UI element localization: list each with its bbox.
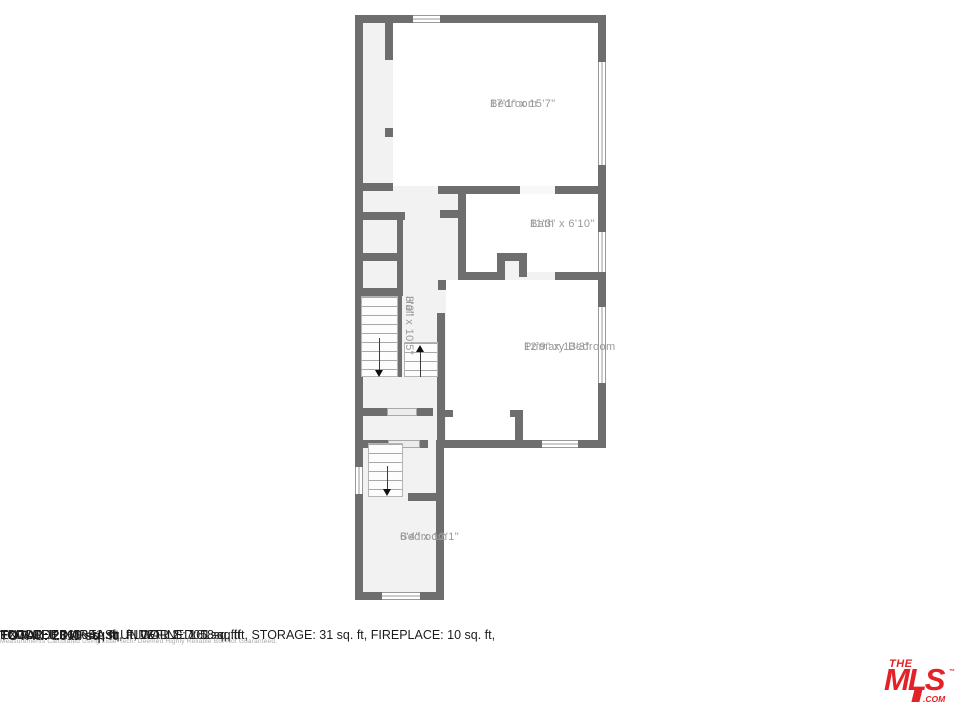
window-left-lower — [355, 467, 363, 494]
wall-closet-stub-b — [510, 410, 523, 417]
wall-right-lower — [436, 440, 444, 600]
room-dims: 6'4" x 12'1" — [400, 530, 459, 544]
room-dims: 12'9" x 13'3" — [524, 340, 590, 354]
wall-bath-bottom-1 — [458, 272, 497, 280]
wall-hall-upper — [355, 212, 405, 220]
window-right-bath — [598, 232, 606, 272]
logo-com-text: .COM — [923, 694, 945, 704]
wall-closet-stub-a — [444, 410, 453, 417]
down-arrow-icon-lower — [383, 489, 391, 496]
floorplan-page: Bedroom 17'1" x 15'7" Bath 11'3" x 6'10"… — [0, 0, 960, 720]
wall-stub-2 — [440, 210, 458, 218]
wall-hall-lower — [355, 253, 400, 261]
wall-primary-left-cap — [438, 280, 446, 290]
wall-bottom-upper-4 — [578, 440, 606, 448]
wall-niche-top — [497, 253, 527, 261]
window-bottom-bedroom — [382, 592, 420, 600]
wall-bath-bottom-2 — [555, 272, 598, 280]
summary-disclaimer: Measurements Calculated Using Lidar Tech… — [0, 638, 277, 645]
room-dims: 17'1" x 15'7" — [490, 97, 556, 111]
wall-bottom-upper-2 — [420, 440, 428, 448]
room-bath — [466, 194, 598, 272]
wall-closet-divider — [385, 23, 393, 60]
closet-slider-door-1 — [387, 408, 417, 416]
down-arrow-icon — [375, 370, 383, 377]
trademark-symbol: ™ — [949, 669, 955, 675]
window-primary-bottom — [542, 440, 578, 448]
themls-logo: THE MLS ™ .COM — [884, 656, 956, 710]
room-dims: 11'3" x 6'10" — [530, 217, 595, 231]
wall-bath-top-2 — [555, 186, 606, 194]
window-top — [413, 15, 440, 23]
window-right-bedroom — [598, 62, 606, 165]
wall-landing-1 — [363, 408, 387, 416]
wall-bath-hall-divider — [458, 194, 466, 276]
floorplan: Bedroom 17'1" x 15'7" Bath 11'3" x 6'10"… — [0, 0, 960, 720]
stair-arrow-line-up — [420, 351, 421, 377]
wall-landing-2 — [417, 408, 433, 416]
wall-top — [355, 15, 606, 23]
wall-stub-1 — [385, 128, 393, 137]
room-dims: 3'0" x 10'5" — [402, 296, 416, 355]
doorway-bath-top — [520, 186, 555, 194]
wall-primary-left — [437, 313, 445, 440]
wall-niche-right — [519, 261, 527, 277]
logo-l-descender — [911, 689, 922, 702]
wall-closet-bottom — [355, 183, 393, 191]
wall-closet-side — [515, 417, 523, 440]
up-arrow-icon — [416, 345, 424, 352]
wall-stairwell-top — [355, 288, 402, 296]
niche-interior — [505, 261, 519, 280]
wall-bath-top-1 — [438, 186, 520, 194]
wall-hall-left — [397, 220, 403, 296]
stair-arrow-line-down — [379, 338, 380, 374]
wall-bottom-upper-3 — [444, 440, 542, 448]
wall-lower-stub — [408, 493, 438, 501]
wall-left-upper — [355, 15, 363, 448]
